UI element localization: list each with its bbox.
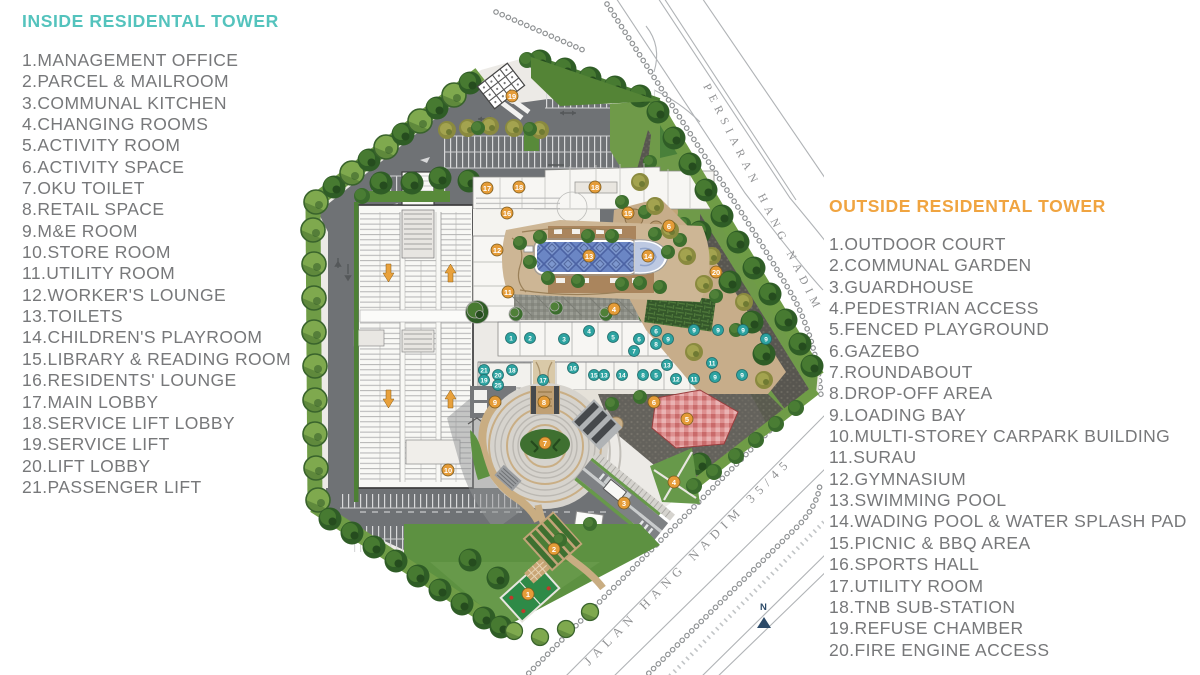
svg-text:17: 17 (483, 184, 491, 193)
svg-text:11: 11 (504, 288, 512, 297)
svg-text:1: 1 (509, 336, 513, 343)
svg-text:5: 5 (654, 373, 658, 380)
svg-text:12: 12 (493, 246, 501, 255)
svg-text:9: 9 (740, 373, 744, 380)
svg-text:6: 6 (667, 222, 671, 231)
svg-text:15: 15 (624, 209, 632, 218)
svg-text:3: 3 (622, 499, 626, 508)
svg-text:15: 15 (590, 373, 598, 380)
svg-text:21: 21 (480, 368, 488, 375)
svg-text:18: 18 (591, 183, 599, 192)
svg-text:4: 4 (587, 329, 591, 336)
svg-text:9: 9 (666, 337, 670, 344)
svg-text:13: 13 (663, 363, 671, 370)
svg-text:10: 10 (444, 466, 452, 475)
svg-text:16: 16 (569, 366, 577, 373)
svg-text:11: 11 (709, 361, 716, 368)
svg-text:14: 14 (618, 373, 626, 380)
svg-text:5: 5 (611, 335, 615, 342)
svg-text:7: 7 (632, 349, 636, 356)
svg-text:6: 6 (652, 398, 656, 407)
svg-text:25: 25 (494, 383, 502, 390)
svg-text:18: 18 (508, 368, 516, 375)
svg-text:9: 9 (493, 398, 497, 407)
svg-text:13: 13 (600, 373, 608, 380)
svg-text:9: 9 (692, 328, 696, 335)
svg-text:3: 3 (562, 337, 566, 344)
svg-text:16: 16 (503, 209, 511, 218)
svg-text:1: 1 (526, 590, 530, 599)
svg-text:7: 7 (543, 439, 547, 448)
svg-text:17: 17 (539, 378, 547, 385)
svg-text:19: 19 (508, 92, 516, 101)
svg-text:2: 2 (528, 336, 532, 343)
svg-text:20: 20 (494, 373, 502, 380)
svg-text:6: 6 (637, 337, 641, 344)
svg-text:5: 5 (685, 415, 689, 424)
svg-text:8: 8 (542, 398, 546, 407)
svg-text:13: 13 (585, 252, 593, 261)
svg-text:18: 18 (515, 183, 523, 192)
svg-text:2: 2 (552, 545, 556, 554)
svg-text:N: N (760, 602, 767, 613)
svg-text:9: 9 (764, 337, 768, 344)
svg-text:11: 11 (691, 377, 698, 384)
svg-text:6: 6 (654, 329, 658, 336)
svg-text:14: 14 (644, 252, 653, 261)
svg-text:8: 8 (654, 342, 658, 349)
svg-text:19: 19 (480, 378, 488, 385)
svg-text:9: 9 (716, 328, 720, 335)
svg-text:9: 9 (741, 328, 745, 335)
svg-text:12: 12 (672, 377, 680, 384)
svg-text:8: 8 (641, 373, 645, 380)
svg-text:20: 20 (712, 268, 720, 277)
svg-text:9: 9 (713, 375, 717, 382)
